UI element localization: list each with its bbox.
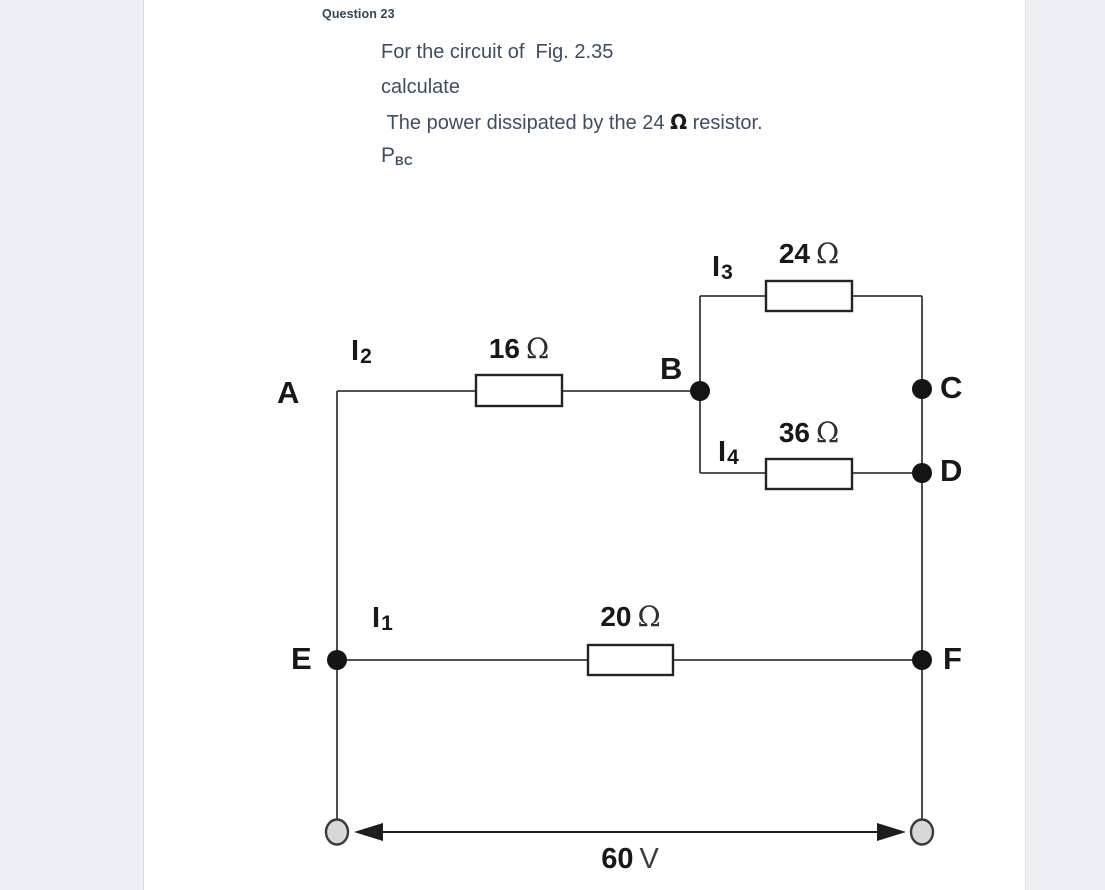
circuit-wires: [337, 296, 922, 821]
resistor-24-box: [766, 281, 852, 311]
current-label-i4: I4: [718, 438, 739, 467]
circuit-figure: [0, 0, 1105, 890]
resistor-36-value: 36: [779, 417, 810, 448]
current-label-i1: I1: [372, 604, 393, 633]
current-i2-subscript: 2: [360, 345, 372, 368]
page: Question 23 For the circuit of Fig. 2.35…: [0, 0, 1105, 890]
resistor-16-box: [476, 375, 562, 406]
voltage-arrow-head-left: [354, 823, 383, 841]
source-voltage-label: 60V: [560, 845, 700, 874]
resistor-label-24: 24Ω: [766, 240, 852, 268]
current-i4-subscript: 4: [727, 446, 739, 469]
terminal-right: [911, 820, 933, 845]
current-label-i2: I2: [351, 337, 372, 366]
right-gutter: [1025, 0, 1105, 890]
resistor-16-unit: Ω: [526, 332, 549, 365]
terminal-left: [326, 820, 348, 845]
current-i3-subscript: 3: [721, 261, 733, 284]
source-voltage-unit: V: [639, 843, 658, 875]
current-label-i3: I3: [712, 253, 733, 282]
node-label-d: D: [940, 455, 962, 486]
source-voltage-value: 60: [601, 843, 633, 875]
current-i2-symbol: I: [351, 335, 359, 367]
resistor-label-20: 20Ω: [588, 603, 673, 631]
node-c-dot: [912, 379, 932, 399]
node-label-c: C: [940, 372, 962, 403]
voltage-arrow: [354, 823, 906, 841]
current-i1-subscript: 1: [381, 612, 393, 635]
node-label-e: E: [291, 643, 312, 674]
current-i4-symbol: I: [718, 436, 726, 468]
node-label-f: F: [943, 643, 962, 674]
resistor-label-36: 36Ω: [766, 419, 852, 447]
resistor-20-unit: Ω: [637, 600, 660, 633]
node-e-dot: [327, 650, 347, 670]
node-b-dot: [690, 381, 710, 401]
resistor-36-unit: Ω: [816, 416, 839, 449]
resistor-label-16: 16Ω: [476, 335, 562, 363]
question-panel: Question 23 For the circuit of Fig. 2.35…: [144, 0, 1025, 890]
node-f-dot: [912, 650, 932, 670]
current-i3-symbol: I: [712, 251, 720, 283]
resistor-24-value: 24: [779, 238, 810, 269]
resistor-24-unit: Ω: [816, 237, 839, 270]
current-i1-symbol: I: [372, 602, 380, 634]
node-label-a: A: [277, 377, 299, 408]
resistor-16-value: 16: [489, 333, 520, 364]
voltage-arrow-head-right: [877, 823, 906, 841]
resistor-36-box: [766, 459, 852, 489]
resistor-20-value: 20: [600, 601, 631, 632]
node-label-b: B: [660, 353, 682, 384]
resistor-20-box: [588, 645, 673, 675]
node-d-dot: [912, 463, 932, 483]
